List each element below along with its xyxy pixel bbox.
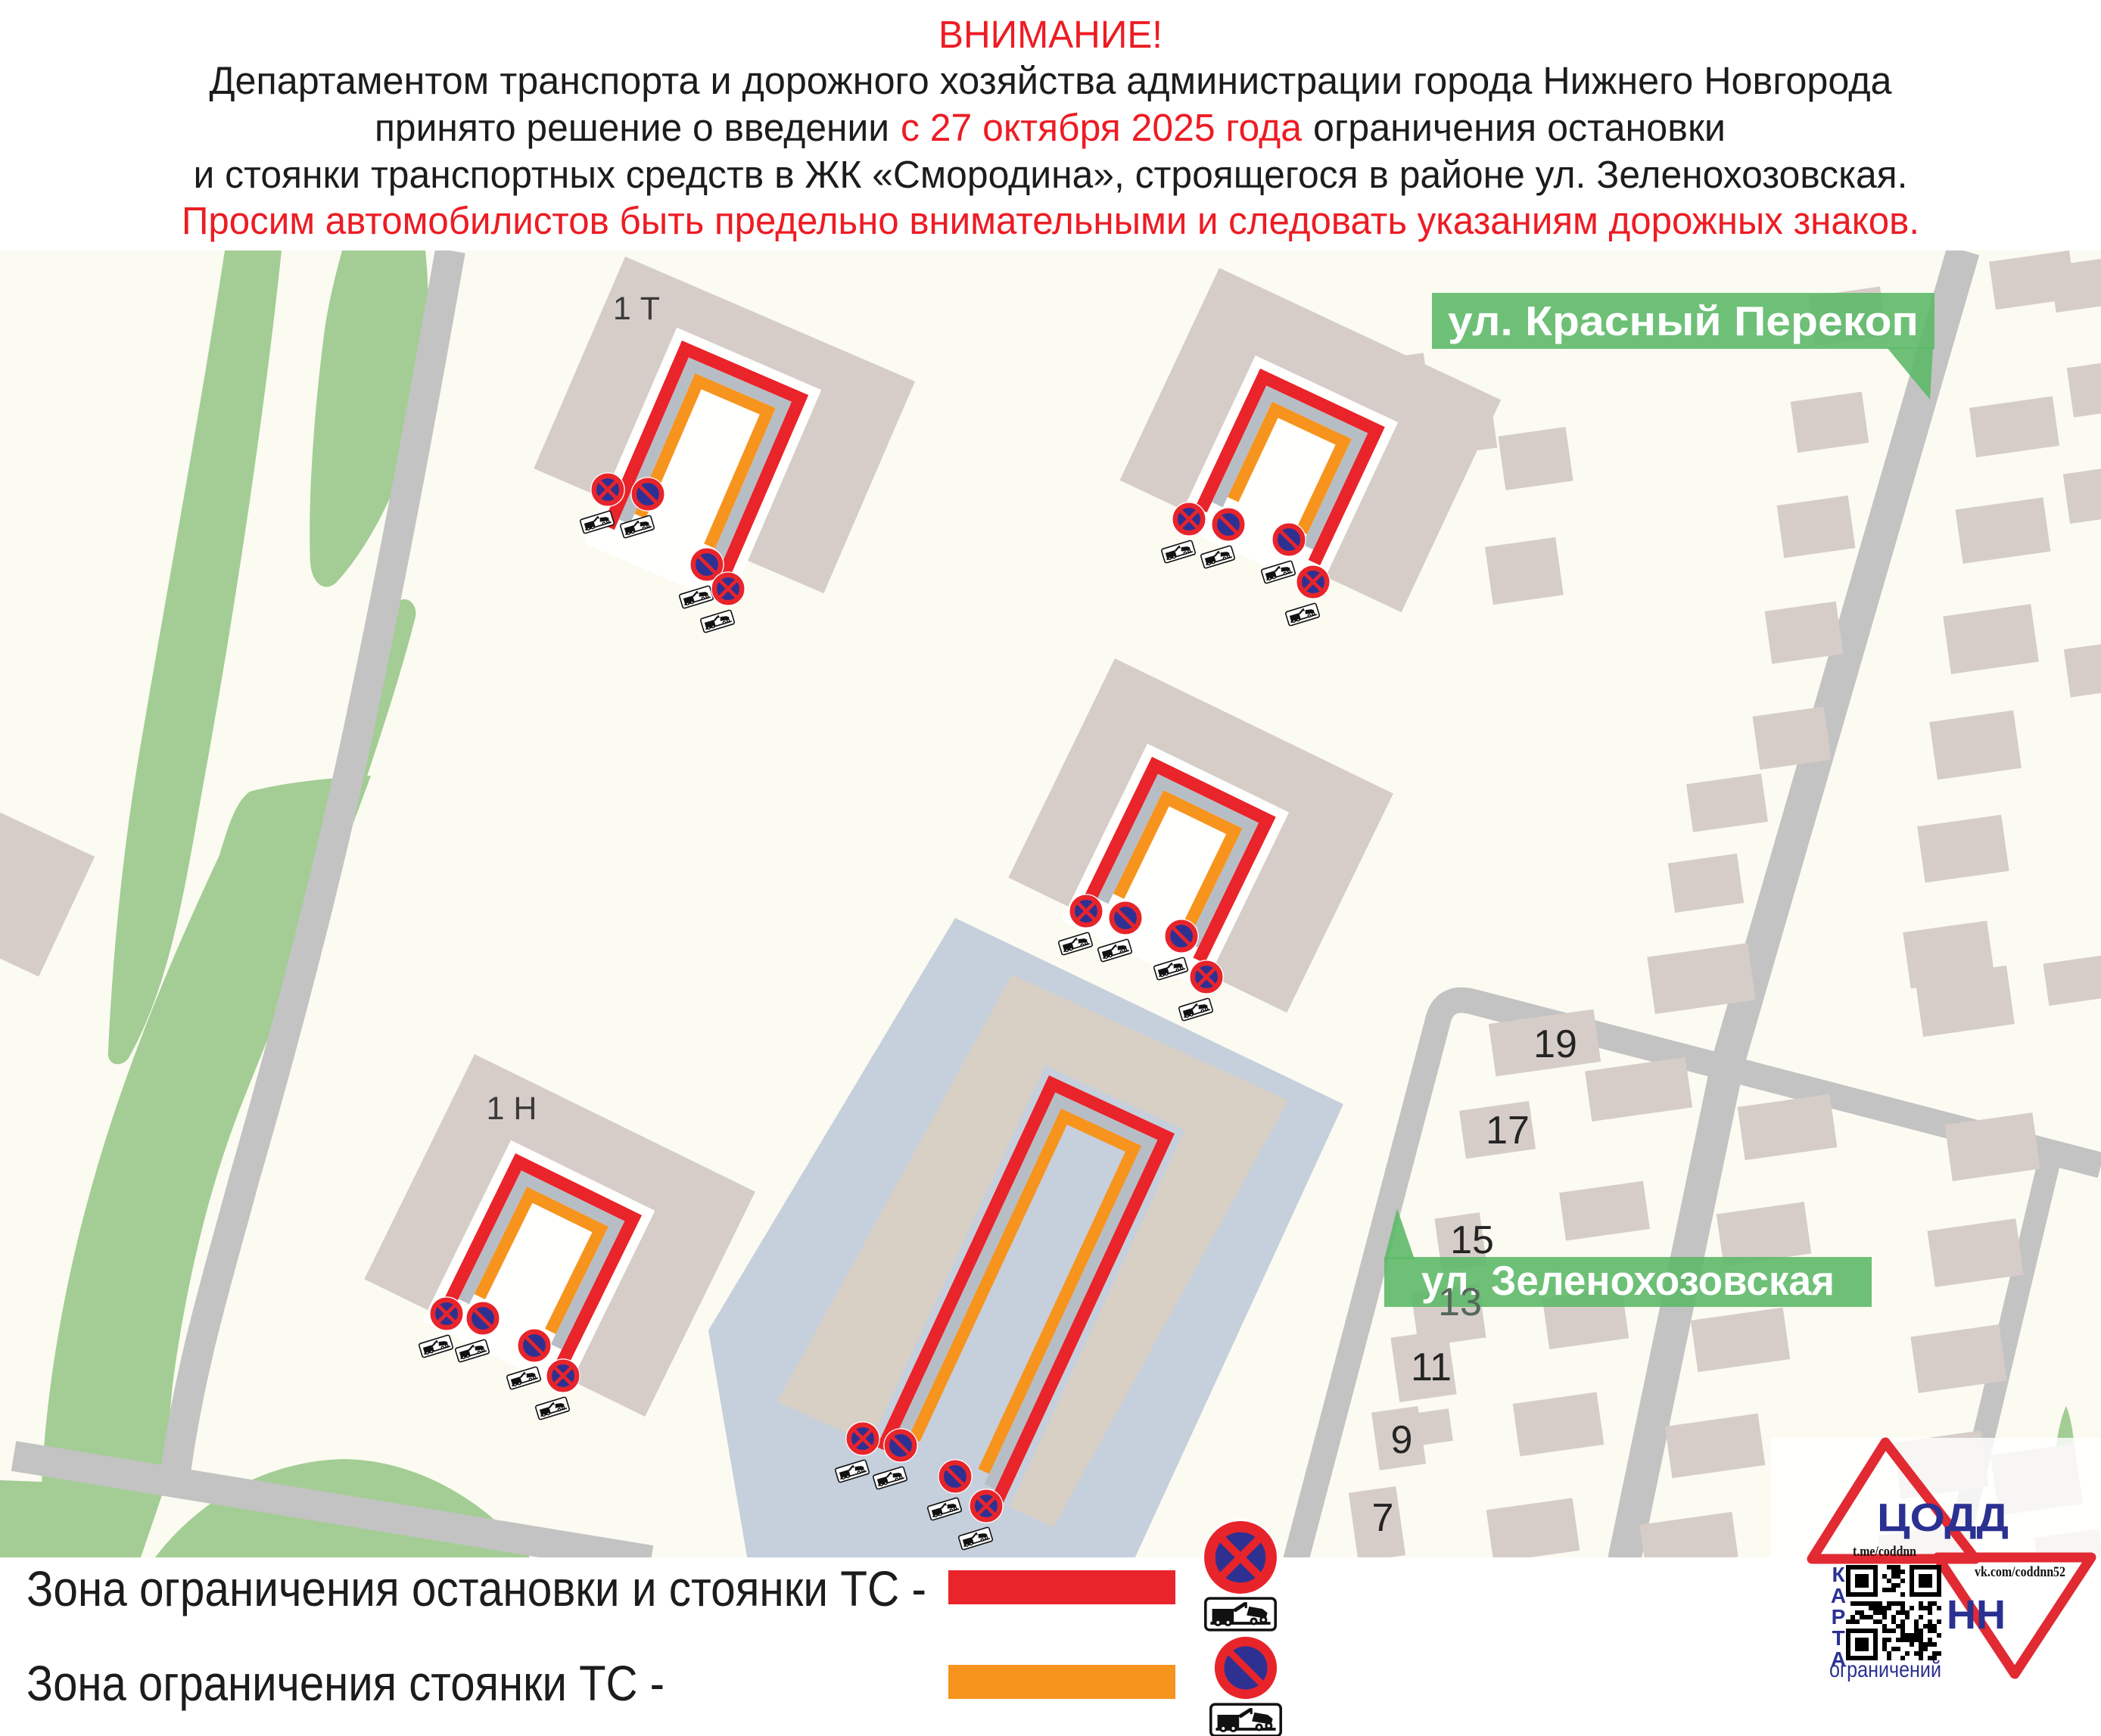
svg-text:vk.com/coddnn52: vk.com/coddnn52 [1975, 1564, 2065, 1580]
svg-text:9: 9 [1391, 1418, 1413, 1462]
svg-text:Департаментом транспорта и дор: Департаментом транспорта и дорожного хоз… [210, 59, 1893, 102]
svg-text:Просим автомобилистов быть пре: Просим автомобилистов быть предельно вни… [182, 199, 1919, 242]
svg-text:t.me/coddnn: t.me/coddnn [1853, 1544, 1916, 1560]
svg-text:А: А [1831, 1584, 1846, 1607]
svg-text:Зона ограничения остановки и с: Зона ограничения остановки и стоянки ТС … [26, 1560, 926, 1616]
svg-text:19: 19 [1533, 1022, 1577, 1066]
svg-text:11: 11 [1411, 1346, 1452, 1389]
svg-text:ограничений: ограничений [1829, 1657, 1941, 1682]
svg-text:ЦОДД: ЦОДД [1877, 1496, 2009, 1540]
svg-text:Р: Р [1832, 1605, 1846, 1629]
svg-text:ул. Зеленохозовская: ул. Зеленохозовская [1421, 1257, 1835, 1304]
svg-text:Зона ограничения стоянки ТС -: Зона ограничения стоянки ТС - [26, 1655, 665, 1711]
svg-text:НН: НН [1947, 1592, 2006, 1638]
svg-text:Т: Т [1832, 1626, 1844, 1650]
svg-text:7: 7 [1372, 1496, 1394, 1540]
svg-text:ВНИМАНИЕ!: ВНИМАНИЕ! [938, 13, 1163, 56]
svg-text:ограничения остановки: ограничения остановки [1313, 106, 1726, 149]
svg-text:и стоянки транспортных средств: и стоянки транспортных средств в ЖК «Смо… [194, 153, 1908, 196]
svg-text:1 Н: 1 Н [487, 1090, 537, 1127]
svg-text:15: 15 [1450, 1218, 1494, 1262]
svg-text:17: 17 [1486, 1109, 1530, 1153]
svg-text:ул. Красный Перекоп: ул. Красный Перекоп [1448, 297, 1919, 344]
svg-text:принято решение о введении: принято решение о введении [375, 106, 889, 149]
svg-text:1 Т: 1 Т [613, 291, 660, 327]
svg-text:с 27 октября 2025 года: с 27 октября 2025 года [901, 106, 1303, 149]
svg-text:13: 13 [1438, 1280, 1482, 1324]
svg-text:К: К [1832, 1563, 1845, 1586]
